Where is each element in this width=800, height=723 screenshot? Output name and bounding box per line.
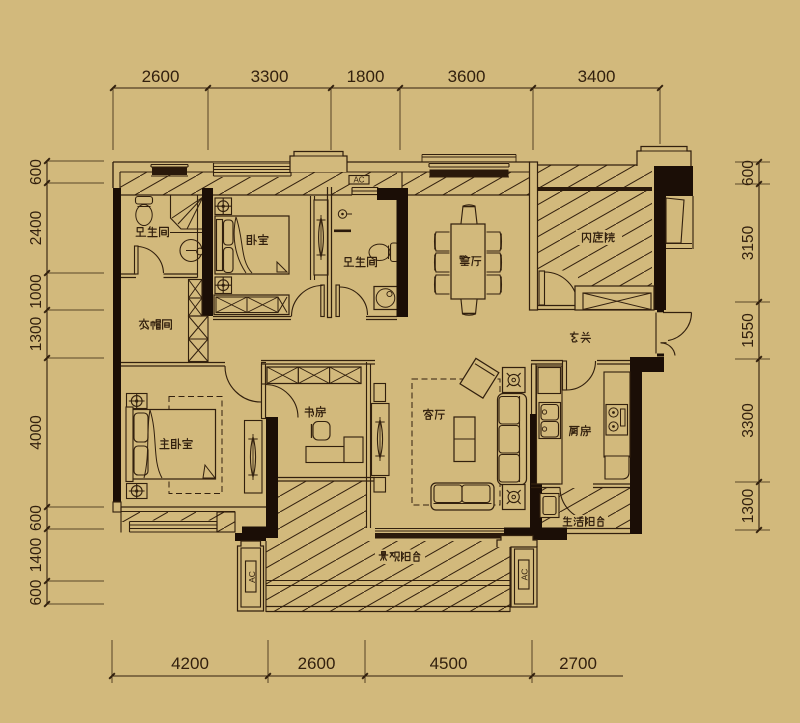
svg-text:2700: 2700 [559, 654, 597, 673]
svg-text:3300: 3300 [251, 67, 289, 86]
svg-text:1300: 1300 [740, 488, 757, 523]
svg-text:600: 600 [28, 505, 45, 531]
svg-text:2600: 2600 [298, 654, 336, 673]
svg-text:600: 600 [740, 160, 757, 186]
svg-text:2600: 2600 [142, 67, 180, 86]
svg-text:AC: AC [247, 571, 257, 583]
svg-text:AC: AC [520, 569, 530, 581]
svg-text:4000: 4000 [28, 415, 45, 450]
svg-text:3150: 3150 [740, 225, 757, 260]
svg-text:2400: 2400 [28, 210, 45, 245]
svg-text:4200: 4200 [171, 654, 209, 673]
svg-text:AC: AC [353, 176, 364, 185]
svg-text:4500: 4500 [430, 654, 468, 673]
svg-text:1800: 1800 [347, 67, 385, 86]
svg-text:1000: 1000 [28, 274, 45, 309]
svg-text:600: 600 [28, 159, 45, 185]
svg-text:600: 600 [28, 579, 45, 605]
svg-text:1300: 1300 [28, 316, 45, 351]
svg-text:1550: 1550 [740, 313, 757, 348]
svg-text:3600: 3600 [448, 67, 486, 86]
svg-text:1400: 1400 [28, 537, 45, 572]
svg-text:3400: 3400 [578, 67, 616, 86]
svg-text:3300: 3300 [740, 403, 757, 438]
